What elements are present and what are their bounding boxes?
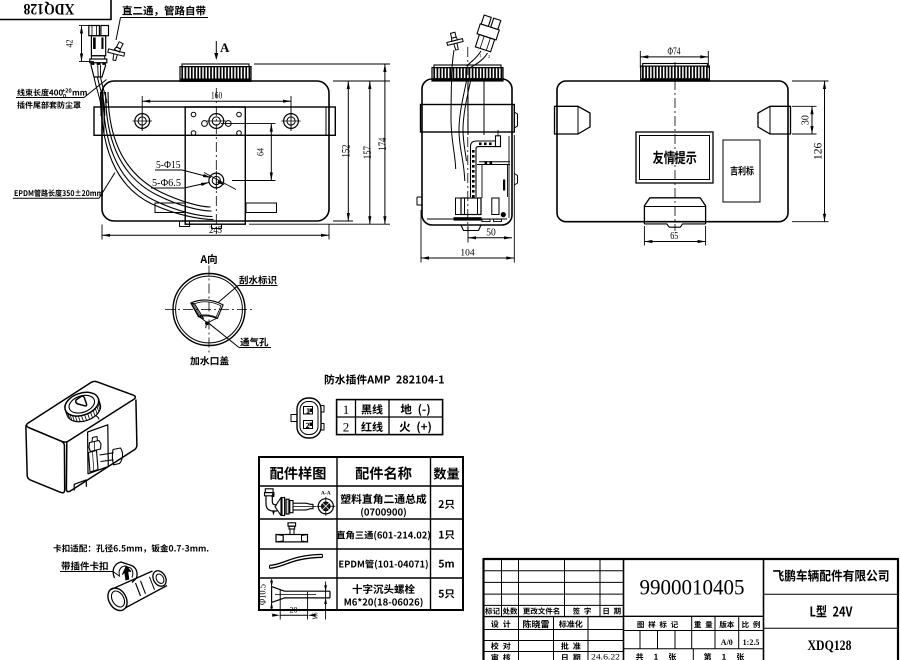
svg-text:M6: M6: [312, 612, 320, 619]
svg-text:126: 126: [813, 142, 825, 160]
svg-text:20: 20: [290, 605, 298, 615]
svg-text:152: 152: [338, 145, 352, 158]
svg-text:160: 160: [211, 91, 223, 101]
svg-text:50: 50: [486, 227, 496, 238]
svg-text:104: 104: [460, 249, 475, 259]
svg-text:2: 2: [488, 54, 490, 59]
svg-text:24.6.22: 24.6.22: [591, 652, 620, 660]
svg-text:5-Φ6.5: 5-Φ6.5: [152, 178, 181, 189]
svg-text:245: 245: [209, 226, 222, 236]
svg-text:42: 42: [65, 40, 75, 48]
svg-text:Φ10.5: Φ10.5: [258, 584, 269, 605]
svg-text:157: 157: [360, 146, 374, 159]
svg-text:64: 64: [256, 148, 266, 156]
svg-text:1: 1: [343, 402, 350, 417]
svg-text:2: 2: [343, 420, 350, 435]
svg-text:65: 65: [670, 231, 678, 242]
svg-text:5-Φ15: 5-Φ15: [156, 160, 181, 171]
svg-text:Φ74: Φ74: [668, 47, 682, 58]
svg-text:A-A: A-A: [321, 491, 331, 497]
svg-text:A/0: A/0: [721, 638, 733, 647]
svg-text:XDQ128: XDQ128: [808, 638, 852, 654]
svg-text:30: 30: [801, 115, 812, 125]
svg-text:A: A: [220, 40, 230, 55]
svg-text:9900010405: 9900010405: [640, 574, 745, 599]
svg-text:174: 174: [375, 138, 389, 151]
svg-text:XDQ128: XDQ128: [23, 0, 74, 17]
svg-text:1:2.5: 1:2.5: [743, 638, 760, 647]
